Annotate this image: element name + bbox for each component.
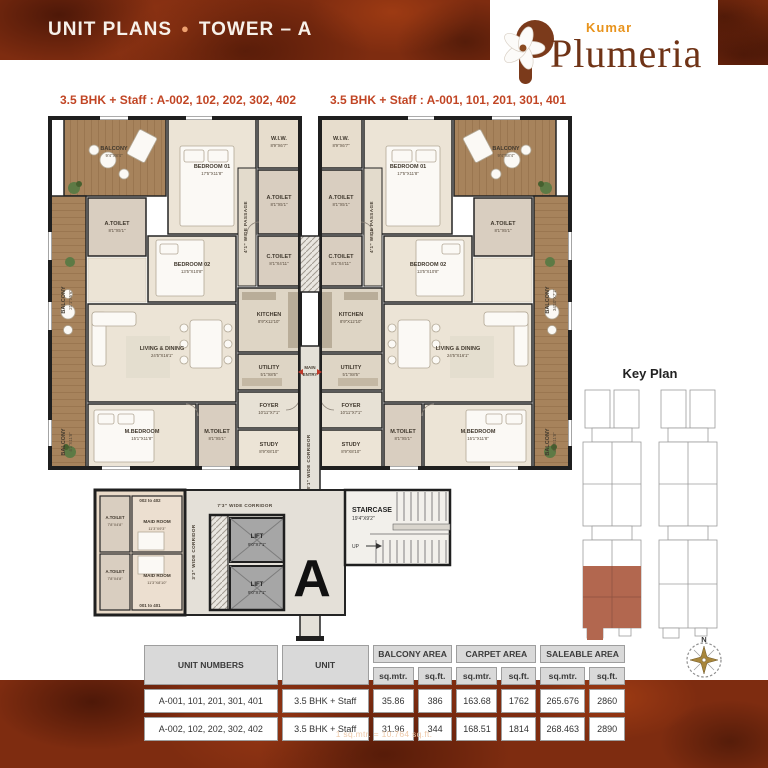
main-corridor-label: 8'1" WIDE CORRIDOR xyxy=(306,434,311,489)
col-header-carpet-area: CARPET AREA xyxy=(456,645,536,663)
cell-balcony-sqmtr: 35.86 xyxy=(373,689,414,713)
cell-carpet-sqmtr: 163.68 xyxy=(456,689,497,713)
cell-balcony-sqft: 386 xyxy=(418,689,453,713)
key-plan: Key Plan xyxy=(583,366,717,640)
key-plan-building-right xyxy=(659,390,717,638)
key-plan-title: Key Plan xyxy=(623,366,678,381)
passage-label-right: 4'1" WIDE PASSAGE xyxy=(369,201,374,253)
cell-saleable-sqft: 2860 xyxy=(589,689,625,713)
tower-letter: A xyxy=(293,550,331,608)
main-entry-label-2: ENTRY xyxy=(303,372,318,377)
cell-saleable-sqmtr: 265.676 xyxy=(540,689,585,713)
unit-a001-geometry-mirrored xyxy=(320,118,570,468)
cell-unit-type: 3.5 BHK + Staff xyxy=(282,689,369,713)
key-plan-building-left xyxy=(583,390,641,640)
service-duct xyxy=(300,236,320,292)
compass-icon: N xyxy=(687,635,721,677)
lift-shaft-duct xyxy=(210,515,228,610)
staircase-block xyxy=(345,490,450,565)
maid-range-top-label: 002 to 402 xyxy=(139,498,161,503)
maid-range-bottom-label: 001 to 401 xyxy=(139,603,161,608)
cell-units: A-001, 101, 201, 301, 401 xyxy=(144,689,278,713)
up-label: UP xyxy=(352,544,360,550)
unit-a002-geometry xyxy=(50,118,300,468)
subheader-balcony-sqmtr: sq.mtr. xyxy=(373,667,414,685)
subheader-saleable-sqmtr: sq.mtr. xyxy=(540,667,585,685)
main-entry-label-1: MAIN xyxy=(304,365,315,370)
col-header-unit: UNIT xyxy=(282,645,369,685)
maid-corridor-label: 3'3" WIDE CORRIDOR xyxy=(191,524,196,579)
maid-toilet2-room xyxy=(100,554,130,610)
lobby-corridor-label: 7'3" WIDE CORRIDOR xyxy=(217,503,272,508)
compass-north-label: N xyxy=(701,635,706,644)
table-row-a001: A-001, 101, 201, 301, 401 3.5 BHK + Staf… xyxy=(144,689,625,713)
passage-label-left: 4'1" WIDE PASSAGE xyxy=(243,201,248,253)
subheader-saleable-sqft: sq.ft. xyxy=(589,667,625,685)
col-header-balcony-area: BALCONY AREA xyxy=(373,645,453,663)
subheader-carpet-sqmtr: sq.mtr. xyxy=(456,667,497,685)
cell-carpet-sqft: 1762 xyxy=(501,689,536,713)
col-header-unit-numbers: UNIT NUMBERS xyxy=(144,645,278,685)
col-header-saleable-area: SALEABLE AREA xyxy=(540,645,625,663)
conversion-note: 1 sq.mtr. = 10.764 sq.ft. xyxy=(0,729,768,739)
subheader-balcony-sqft: sq.ft. xyxy=(418,667,453,685)
subheader-carpet-sqft: sq.ft. xyxy=(501,667,536,685)
